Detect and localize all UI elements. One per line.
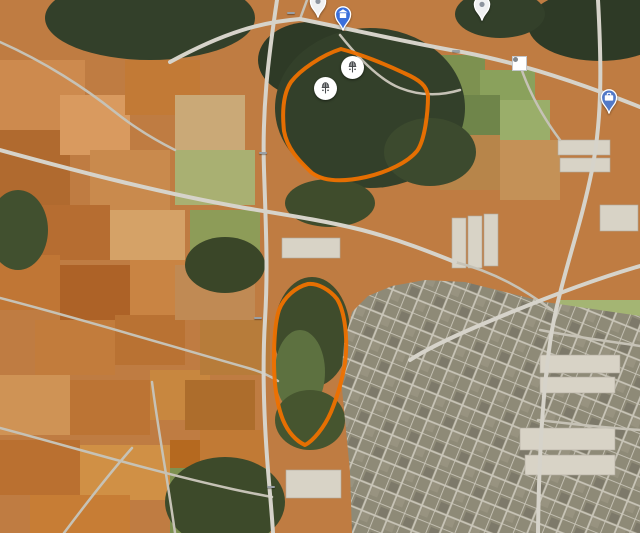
business-pin-icon — [599, 87, 619, 115]
gray-pin-marker[interactable] — [472, 0, 492, 22]
road-shield — [267, 486, 275, 488]
shrine-icon — [333, 4, 353, 32]
shrine-pin-marker[interactable] — [333, 4, 353, 32]
road-shield — [259, 152, 267, 154]
shrine-tower-icon — [318, 81, 333, 96]
generic-poi-icon — [308, 0, 328, 19]
shrine-tower-icon — [345, 60, 360, 75]
road-shield — [287, 12, 295, 14]
gray-pin-marker[interactable] — [308, 0, 328, 19]
road-shield — [452, 50, 460, 52]
urban-area — [341, 280, 640, 533]
road-shield — [254, 317, 262, 319]
poi-dot-icon — [513, 57, 518, 62]
temple-circle-marker[interactable] — [341, 56, 364, 79]
temple-circle-marker[interactable] — [314, 77, 337, 100]
blue-pin-marker[interactable] — [599, 87, 619, 115]
dot-circle-marker[interactable] — [512, 56, 527, 71]
map-viewport[interactable] — [0, 0, 640, 533]
generic-poi-icon — [472, 0, 492, 22]
